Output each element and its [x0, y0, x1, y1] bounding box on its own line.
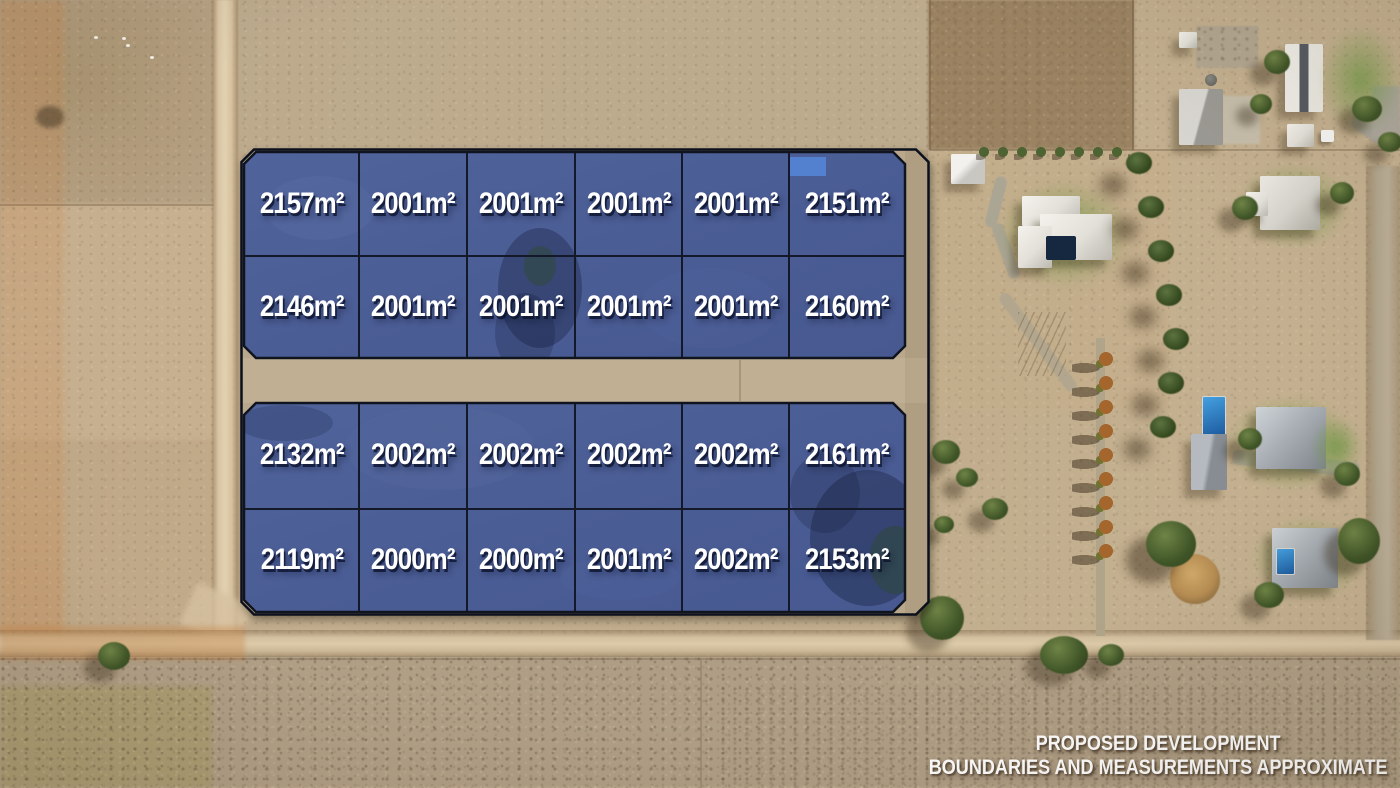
tree — [1150, 416, 1176, 438]
lot-area-label: 2002m² — [479, 438, 563, 472]
lot-s-r2-c1: 2119m² — [244, 508, 359, 613]
lot-area-label: 2002m² — [694, 543, 778, 577]
dark-ground-patch — [36, 106, 64, 128]
field-top-right-dark — [928, 0, 1134, 150]
lot-s-r2-c2: 2000m² — [359, 508, 467, 613]
lot-n-r2-c6: 2160m² — [789, 255, 905, 358]
tree — [1138, 196, 1164, 218]
lot-area-label: 2001m² — [479, 187, 563, 221]
disclaimer-line-2: BOUNDARIES AND MEASUREMENTS APPROXIMATE — [929, 756, 1388, 780]
fence-line — [0, 204, 214, 206]
lot-area-label: 2119m² — [260, 543, 342, 577]
road-right-vertical — [1366, 166, 1400, 640]
courtyard-pool — [1046, 236, 1076, 260]
lot-n-r2-c3: 2001m² — [467, 255, 575, 358]
lot-area-label: 2001m² — [479, 290, 563, 324]
tree — [1352, 96, 1382, 122]
patch-bottom-left-olive — [0, 686, 212, 788]
tree — [1098, 644, 1124, 666]
tree — [956, 468, 978, 487]
house — [1260, 176, 1320, 230]
tree — [1338, 518, 1380, 564]
lot-area-label: 2001m² — [694, 290, 778, 324]
lot-area-label: 2000m² — [479, 543, 563, 577]
lot-area-label: 2157m² — [260, 187, 344, 221]
livestock-dot — [126, 44, 130, 47]
tree — [1264, 50, 1290, 74]
tree — [1232, 196, 1258, 220]
tree — [1254, 582, 1284, 608]
lot-s-r1-c3: 2002m² — [467, 403, 575, 508]
white-van — [1321, 130, 1334, 142]
lot-area-label: 2001m² — [587, 543, 671, 577]
lot-s-r1-c2: 2002m² — [359, 403, 467, 508]
small-shed — [1287, 124, 1314, 147]
lot-s-r2-c3: 2000m² — [467, 508, 575, 613]
tree — [1334, 462, 1360, 486]
tree — [1040, 636, 1088, 674]
lot-area-label: 2146m² — [260, 290, 344, 324]
disclaimer-line-1: PROPOSED DEVELOPMENT — [929, 732, 1388, 756]
tree — [1148, 240, 1174, 262]
lot-area-label: 2002m² — [371, 438, 455, 472]
swimming-pool — [1202, 396, 1226, 436]
lot-n-r2-c2: 2001m² — [359, 255, 467, 358]
water-tank — [1205, 74, 1217, 86]
lot-area-label: 2132m² — [260, 438, 344, 472]
livestock-dot — [122, 37, 126, 40]
fence-line — [1132, 0, 1134, 150]
tree — [98, 642, 130, 670]
lot-area-label: 2001m² — [587, 187, 671, 221]
lot-area-label: 2002m² — [587, 438, 671, 472]
tree — [932, 440, 960, 464]
crop-rows — [1018, 312, 1066, 376]
swimming-pool — [1276, 548, 1295, 575]
large-shed — [1179, 89, 1223, 145]
tree — [1146, 521, 1196, 567]
lot-n-r1-c3: 2001m² — [467, 152, 575, 255]
lot-grid-north: 2157m² 2001m² 2001m² 2001m² 2001m² 2151m… — [244, 152, 905, 358]
lot-s-r1-c4: 2002m² — [575, 403, 682, 508]
tree — [1158, 372, 1184, 394]
tree — [1330, 182, 1354, 204]
lot-s-r1-c6: 2161m² — [789, 403, 905, 508]
lot-area-label: 2153m² — [805, 543, 889, 577]
tree — [1238, 428, 1262, 450]
lot-s-r2-c4: 2001m² — [575, 508, 682, 613]
livestock-dot — [150, 56, 154, 59]
aerial-photo: 2157m² 2001m² 2001m² 2001m² 2001m² 2151m… — [0, 0, 1400, 788]
lot-n-r1-c1: 2157m² — [244, 152, 359, 255]
lot-area-label: 2002m² — [694, 438, 778, 472]
orange-wash-left — [0, 0, 64, 636]
lot-s-r1-c5: 2002m² — [682, 403, 789, 508]
autumn-tree-row — [1072, 350, 1120, 566]
lot-n-r2-c5: 2001m² — [682, 255, 789, 358]
lot-area-label: 2000m² — [371, 543, 455, 577]
fence-line — [700, 660, 702, 788]
lot-n-r1-c6: 2151m² — [789, 152, 905, 255]
dirt-track-left — [212, 0, 238, 634]
lot-area-label: 2001m² — [587, 290, 671, 324]
lot-area-label: 2161m² — [805, 438, 889, 472]
disclaimer-text: PROPOSED DEVELOPMENT BOUNDARIES AND MEAS… — [929, 732, 1388, 780]
lot-s-r2-c5: 2002m² — [682, 508, 789, 613]
lot-area-label: 2001m² — [371, 290, 455, 324]
lot-area-label: 2001m² — [694, 187, 778, 221]
tree-row — [976, 144, 1130, 162]
field-above-development — [238, 0, 930, 151]
lot-grid-south: 2132m² 2002m² 2002m² 2002m² 2002m² 2161m… — [244, 403, 905, 612]
lot-n-r2-c1: 2146m² — [244, 255, 359, 358]
lot-n-r1-c2: 2001m² — [359, 152, 467, 255]
lot-s-r1-c1: 2132m² — [244, 403, 359, 508]
solar-roof-house — [1285, 44, 1323, 112]
fence-line — [929, 0, 931, 150]
tree — [982, 498, 1008, 520]
lot-n-r1-c4: 2001m² — [575, 152, 682, 255]
lot-area-label: 2001m² — [371, 187, 455, 221]
tree — [1126, 152, 1152, 174]
tree — [934, 516, 954, 533]
lot-n-r1-c5: 2001m² — [682, 152, 789, 255]
lot-n-r2-c4: 2001m² — [575, 255, 682, 358]
shed — [1191, 434, 1227, 490]
tree — [1163, 328, 1189, 350]
tree — [1378, 132, 1400, 152]
lot-s-r2-c6: 2153m² — [789, 508, 905, 613]
gravel-parking — [1196, 26, 1258, 68]
tree — [1156, 284, 1182, 306]
small-shed — [1179, 32, 1197, 48]
livestock-dot — [94, 36, 98, 39]
lot-area-label: 2151m² — [805, 187, 889, 221]
tree — [1250, 94, 1272, 114]
lot-area-label: 2160m² — [805, 290, 889, 324]
